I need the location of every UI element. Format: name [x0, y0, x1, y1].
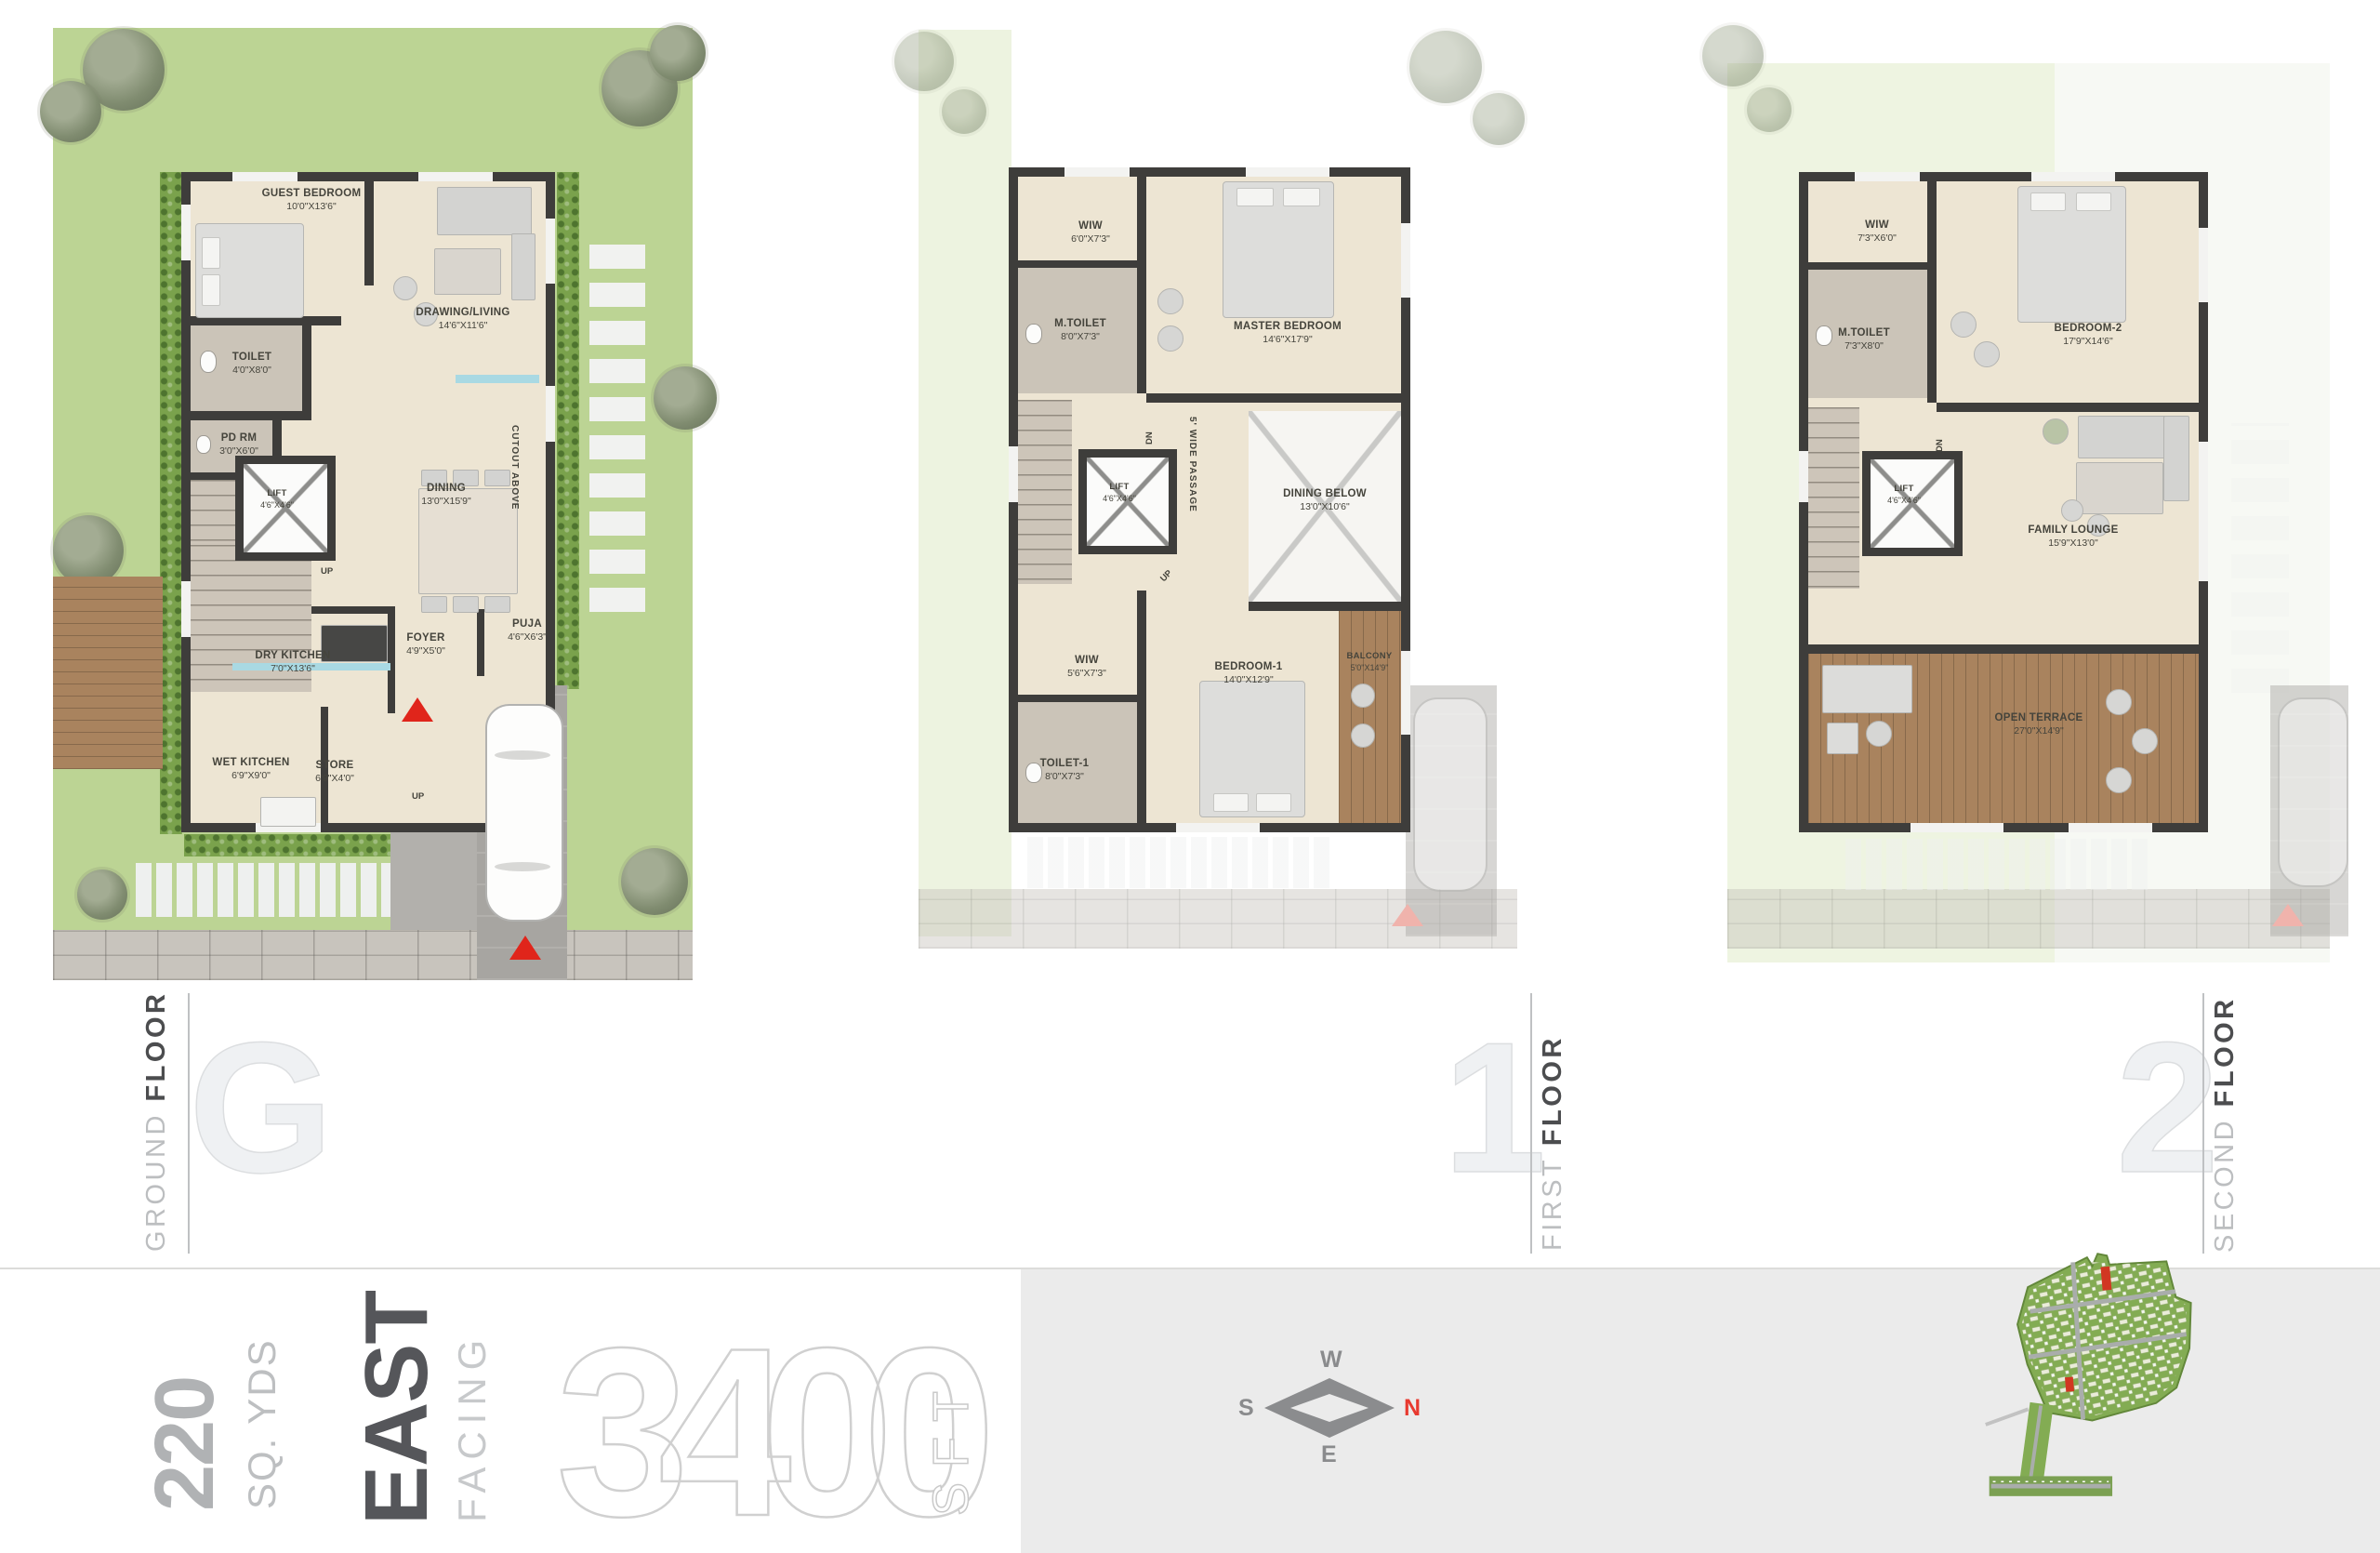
room-label-wiw-2: WIW5'6"X7'3" — [1067, 654, 1106, 681]
tree — [621, 848, 688, 915]
tree — [1747, 87, 1792, 132]
room-label-open-terrace: OPEN TERRACE27'0"X14'9" — [1995, 711, 2083, 738]
second-floor-plan: WIW7'3"X6'0" M.TOILET7'3"X8'0" BEDROOM-2… — [1725, 28, 2330, 965]
room-label-foyer: FOYER4'9"X5'0" — [406, 631, 445, 658]
first-building: WIW6'0"X7'3" M.TOILET8'0"X7'3" MASTER BE… — [1009, 167, 1410, 832]
room-label-toilet: TOILET4'0"X8'0" — [232, 351, 271, 378]
gate-arrow — [509, 936, 541, 960]
divider — [2202, 993, 2204, 1254]
compass-north: N — [1404, 1395, 1421, 1422]
parking-slats — [136, 863, 431, 917]
facing-value: EAST — [346, 1297, 448, 1525]
ghost-arrow — [2272, 904, 2304, 926]
cutout-above-label: CUTOUT ABOVE — [509, 425, 520, 578]
room-label-wet-kitchen: WET KITCHEN6'9"X9'0" — [212, 756, 289, 783]
room-label-drawing-living: DRAWING/LIVING14'6"X11'6" — [416, 306, 509, 333]
tree — [53, 515, 124, 586]
tree — [1473, 93, 1525, 145]
room-label-toilet-1: TOILET-18'0"X7'3" — [1040, 757, 1090, 784]
site-plan-locator — [1978, 1239, 2250, 1538]
up-label-porch: UP — [412, 791, 424, 802]
room-label-pd-rm: PD RM3'0"X6'0" — [219, 431, 258, 458]
room-label-lift: LIFT4'6"X4'6" — [1103, 482, 1136, 504]
room-label-bedroom-1: BEDROOM-114'0"X12'9" — [1215, 660, 1283, 687]
ghost-parking-slats — [1845, 839, 2148, 890]
ground-side-deck — [53, 577, 163, 769]
room-label-lift: LIFT4'6"X4'6" — [1887, 484, 1921, 506]
room-label-guest-bedroom: GUEST BEDROOM10'0"X13'6" — [262, 187, 362, 214]
room-label-store: STORE6'9"X4'0" — [315, 759, 354, 786]
ghost-parking-slats — [1027, 837, 1334, 888]
room-label-balcony: BALCONY5'0"X14'9" — [1346, 651, 1392, 673]
plot-area-value: 220 — [138, 1321, 233, 1511]
passage-label: 5' WIDE PASSAGE — [1187, 417, 1197, 593]
compass-south: S — [1238, 1395, 1254, 1422]
tree — [1702, 25, 1764, 86]
room-label-bedroom-2: BEDROOM-217'9"X14'6" — [2055, 322, 2122, 349]
dn-label: DN — [1935, 418, 1945, 452]
ghost-arrow — [1392, 904, 1423, 926]
tree — [654, 366, 717, 430]
tree — [77, 869, 127, 920]
room-label-m-toilet: M.TOILET8'0"X7'3" — [1054, 317, 1106, 344]
ghost-car — [2278, 697, 2348, 887]
first-floor-label: FIRST FLOOR — [1538, 1014, 1568, 1251]
room-label-lift: LIFT4'6"X4'6" — [260, 488, 294, 511]
divider — [188, 993, 190, 1254]
hedge-bottom — [184, 834, 392, 856]
car — [485, 704, 563, 922]
compass: W S N E — [1236, 1350, 1422, 1471]
second-floor-label: SECOND FLOOR — [2210, 1009, 2241, 1253]
ghost-pavement — [1727, 889, 2330, 949]
second-building: WIW7'3"X6'0" M.TOILET7'3"X8'0" BEDROOM-2… — [1799, 172, 2208, 832]
tree — [1409, 31, 1482, 103]
first-floor-plan: WIW6'0"X7'3" M.TOILET8'0"X7'3" MASTER BE… — [917, 28, 1519, 965]
room-label-dining-below: DINING BELOW13'0"X10'6" — [1283, 487, 1367, 514]
room-label-wiw: WIW6'0"X7'3" — [1071, 219, 1110, 246]
room-label-master-bedroom: MASTER BEDROOM14'6"X17'9" — [1234, 320, 1342, 347]
garden-stepping-stones — [589, 234, 645, 612]
room-label-family-lounge: FAMILY LOUNGE15'9"X13'0" — [2028, 524, 2118, 551]
ghost-stepping-stones — [2231, 423, 2289, 693]
tree — [40, 81, 101, 142]
tree — [942, 89, 986, 134]
tree — [894, 32, 954, 91]
compass-west: W — [1320, 1347, 1342, 1374]
room-label-wiw: WIW7'3"X6'0" — [1858, 219, 1897, 246]
ground-floor-label: GROUND FLOOR — [141, 1002, 172, 1252]
built-area-value: 3400 — [556, 1330, 965, 1533]
compass-east: E — [1321, 1441, 1337, 1468]
room-label-puja: PUJA4'6"X6'3" — [508, 617, 547, 644]
room-label-dining: DINING13'0"X15'9" — [421, 482, 471, 509]
ground-floor-plan: UP — [51, 26, 694, 982]
tree — [650, 25, 706, 81]
ghost-car — [1413, 697, 1487, 892]
up-label-stairs: UP — [321, 566, 333, 577]
balcony-deck — [1339, 602, 1401, 823]
room-label-m-toilet: M.TOILET7'3"X8'0" — [1838, 326, 1890, 353]
facing-label: FACING — [450, 1304, 495, 1522]
built-area-unit: SFT — [922, 1332, 980, 1516]
site-plan-map — [1978, 1239, 2250, 1538]
divider — [1530, 993, 1532, 1254]
hedge-left — [160, 172, 182, 834]
room-label-dry-kitchen: DRY KITCHEN7'0"X13'6" — [255, 649, 330, 676]
entry-arrow — [402, 697, 433, 722]
plot-area-unit: SQ. YDS — [240, 1328, 284, 1509]
hedge-right — [557, 172, 579, 689]
dn-label: DN — [1144, 411, 1155, 445]
ground-floor-glyph: G — [189, 1015, 334, 1201]
floorplan-brochure: UP — [0, 0, 2380, 1553]
street-pavement — [53, 930, 693, 980]
